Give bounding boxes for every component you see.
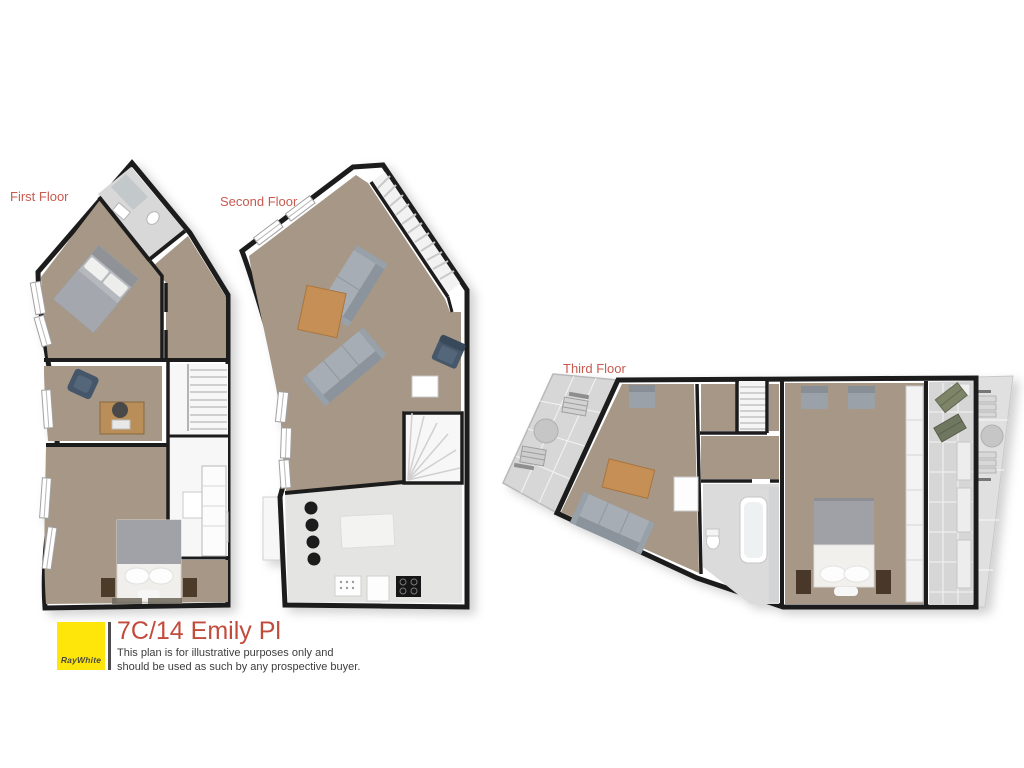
bed-icon <box>117 520 181 602</box>
branding-block: RayWhite 7C/14 Emily Pl This plan is for… <box>57 619 360 675</box>
third-floor-label: Third Floor <box>563 361 626 376</box>
cabinet-icon <box>412 376 438 397</box>
disclaimer-text: This plan is for illustrative purposes o… <box>117 647 360 675</box>
shower-icon <box>769 487 779 602</box>
raywhite-logo: RayWhite <box>57 622 105 670</box>
armchair-icon <box>848 386 875 409</box>
nightstand-icon <box>876 570 891 594</box>
toilet-icon <box>706 529 720 549</box>
stove-icon <box>396 576 421 597</box>
property-title: 7C/14 Emily Pl <box>117 619 360 644</box>
hall-floor <box>769 384 779 431</box>
bed-icon <box>814 498 874 596</box>
spiral-staircase-icon <box>404 413 462 483</box>
divider <box>108 622 111 670</box>
disclaimer-line-2: should be used as such by any prospectiv… <box>117 661 360 675</box>
armchair-icon <box>629 385 655 408</box>
armchair-icon <box>801 386 828 409</box>
first-floor-plan <box>30 163 228 608</box>
balcony-ledge <box>263 497 280 560</box>
nightstand-icon <box>183 578 197 597</box>
planter-icon <box>957 488 971 532</box>
tv-cabinet-icon <box>674 477 698 511</box>
window-icon <box>280 428 291 458</box>
outdoor-table-icon <box>981 425 1003 447</box>
second-floor-label: Second Floor <box>220 194 297 209</box>
hall-floor <box>701 384 736 431</box>
planter-icon <box>957 540 971 588</box>
sink-icon <box>335 576 361 596</box>
rug-icon <box>112 598 142 604</box>
wardrobe-icon <box>906 386 923 602</box>
disclaimer-line-1: This plan is for illustrative purposes o… <box>117 647 360 661</box>
nightstand-icon <box>796 570 811 594</box>
third-floor-plan <box>503 374 1013 607</box>
coffee-table-icon <box>298 285 346 337</box>
title-block: 7C/14 Emily Pl This plan is for illustra… <box>117 619 360 675</box>
window-icon <box>279 460 291 489</box>
desk-icon <box>100 402 144 434</box>
floorplan-canvas: First Floor Second Floor Third Floor Ray… <box>0 0 1024 768</box>
raywhite-logo-text: RayWhite <box>61 655 101 665</box>
kitchen-island-icon <box>340 514 395 549</box>
cabinet-icon <box>367 576 389 601</box>
rug-icon <box>148 598 182 604</box>
second-floor-plan <box>242 165 467 607</box>
staircase-icon <box>739 381 767 434</box>
hall-floor <box>701 436 779 479</box>
outdoor-table-icon <box>534 419 558 443</box>
rooftop-terrace <box>976 376 1013 607</box>
wardrobe-icon <box>202 466 226 556</box>
nightstand-icon <box>101 578 115 597</box>
first-floor-label: First Floor <box>10 189 69 204</box>
planter-icon <box>957 442 971 480</box>
